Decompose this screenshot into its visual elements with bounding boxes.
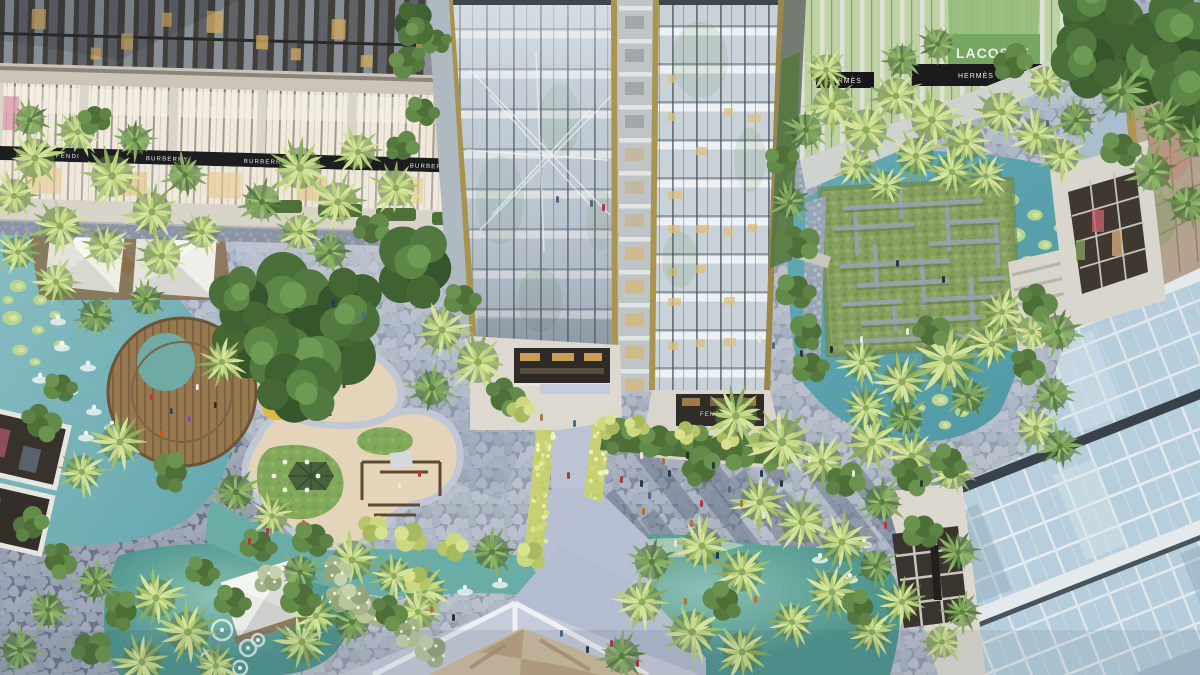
svg-text:HERMÈS: HERMÈS xyxy=(958,71,994,80)
svg-text:FENDI: FENDI xyxy=(56,154,80,161)
